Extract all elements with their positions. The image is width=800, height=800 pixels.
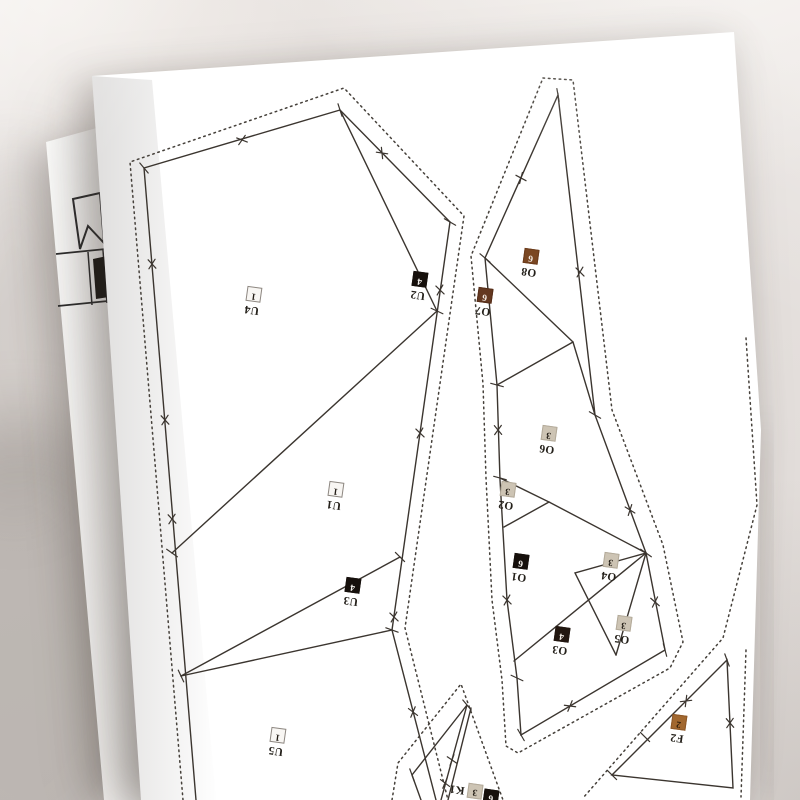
piece-name-label: O6 [539, 441, 556, 455]
piece-label-O1: O1 6 [511, 553, 530, 582]
piece-color-box: 6 [483, 789, 500, 800]
piece-color-box: 3 [467, 783, 484, 800]
piece-label-U3: U3 4 [343, 577, 362, 606]
piece-fabric-number: 6 [528, 252, 534, 262]
pattern-mockup-scene: U4 1 U2 4 U1 1 U3 4 U5 1 O8 6 O7 6 O6 [0, 0, 800, 800]
piece-color-box: 4 [344, 577, 361, 594]
piece-fabric-number: 1 [251, 290, 257, 300]
piece-color-box: 3 [602, 552, 619, 569]
piece-name-label: U1 [326, 497, 342, 510]
piece-fabric-number: 3 [505, 485, 511, 495]
piece-label-U1: U1 1 [326, 481, 345, 510]
piece-label-U5: U5 1 [268, 727, 287, 756]
piece-fabric-number: 3 [621, 619, 627, 629]
piece-fabric-number: 4 [559, 630, 565, 640]
piece-label-O5: O5 3 [614, 615, 633, 644]
piece-color-box: 6 [522, 248, 539, 265]
piece-label-O7: O7 6 [475, 287, 494, 316]
piece-fabric-number: 1 [333, 485, 339, 495]
piece-fabric-number: 6 [482, 291, 488, 301]
piece-label-O3: O3 4 [552, 626, 571, 655]
piece-label-F2: F2 2 [669, 714, 688, 743]
piece-fabric-number: 3 [608, 556, 614, 566]
piece-color-box: 6 [512, 553, 529, 570]
piece-name-label: K1 [449, 782, 466, 796]
piece-name-label: O7 [475, 303, 492, 317]
piece-label-O8: O8 6 [521, 248, 540, 277]
piece-color-box: 2 [670, 714, 687, 731]
piece-label-O6: O6 3 [539, 425, 558, 454]
piece-name-label: O4 [601, 568, 618, 582]
piece-label-U4: U4 1 [244, 286, 263, 315]
piece-name-label: O5 [614, 631, 631, 645]
piece-fabric-number: 3 [546, 429, 552, 439]
piece-color-box: 1 [327, 481, 344, 498]
piece-name-label: U5 [268, 743, 284, 756]
piece-color-box: 4 [411, 271, 428, 288]
piece-label-K1: K1 3 [448, 780, 483, 799]
piece-fabric-number: 4 [350, 581, 356, 591]
piece-name-label: O1 [511, 569, 528, 583]
piece-color-box: 3 [499, 481, 516, 498]
piece-fabric-number: 6 [488, 792, 494, 800]
piece-name-label: O2 [498, 497, 515, 511]
piece-name-label: U3 [343, 593, 359, 606]
piece-color-box: 1 [269, 727, 286, 744]
piece-label-box: 6 [483, 789, 500, 800]
piece-color-box: 3 [615, 615, 632, 632]
piece-fabric-number: 4 [417, 275, 423, 285]
piece-name-label: F2 [669, 730, 684, 743]
piece-name-label: O8 [521, 264, 538, 278]
piece-fabric-number: 6 [518, 557, 524, 567]
piece-color-box: 6 [476, 287, 493, 304]
piece-color-box: 4 [553, 626, 570, 643]
piece-color-box: 3 [540, 425, 557, 442]
piece-fabric-number: 1 [275, 731, 281, 741]
piece-name-label: U2 [410, 287, 426, 300]
piece-labels-layer: U4 1 U2 4 U1 1 U3 4 U5 1 O8 6 O7 6 O6 [0, 0, 800, 800]
piece-label-O2: O2 3 [498, 481, 517, 510]
piece-name-label: O3 [552, 642, 569, 656]
piece-label-U2: U2 4 [410, 271, 429, 300]
piece-fabric-number: 3 [472, 786, 478, 796]
piece-fabric-number: 2 [676, 718, 682, 728]
piece-color-box: 1 [245, 286, 262, 303]
piece-name-label: U4 [244, 302, 260, 315]
piece-label-O4: O4 3 [601, 552, 620, 581]
